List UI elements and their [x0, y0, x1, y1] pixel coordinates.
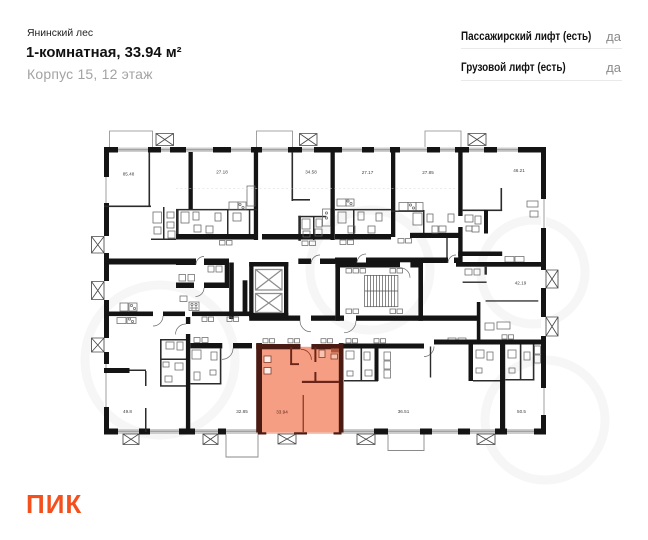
svg-text:49.8: 49.8: [123, 409, 132, 414]
svg-text:27.17: 27.17: [362, 170, 374, 175]
svg-text:42.19: 42.19: [515, 281, 527, 286]
svg-text:50.5: 50.5: [517, 409, 526, 414]
svg-text:32.85: 32.85: [236, 409, 248, 414]
svg-text:34.58: 34.58: [305, 170, 317, 175]
svg-text:27.85: 27.85: [422, 170, 434, 175]
svg-text:33.94: 33.94: [276, 410, 288, 415]
svg-text:85.48: 85.48: [123, 172, 135, 177]
svg-text:36.51: 36.51: [398, 409, 410, 414]
svg-text:46.21: 46.21: [513, 168, 525, 173]
svg-text:27.18: 27.18: [216, 170, 228, 175]
